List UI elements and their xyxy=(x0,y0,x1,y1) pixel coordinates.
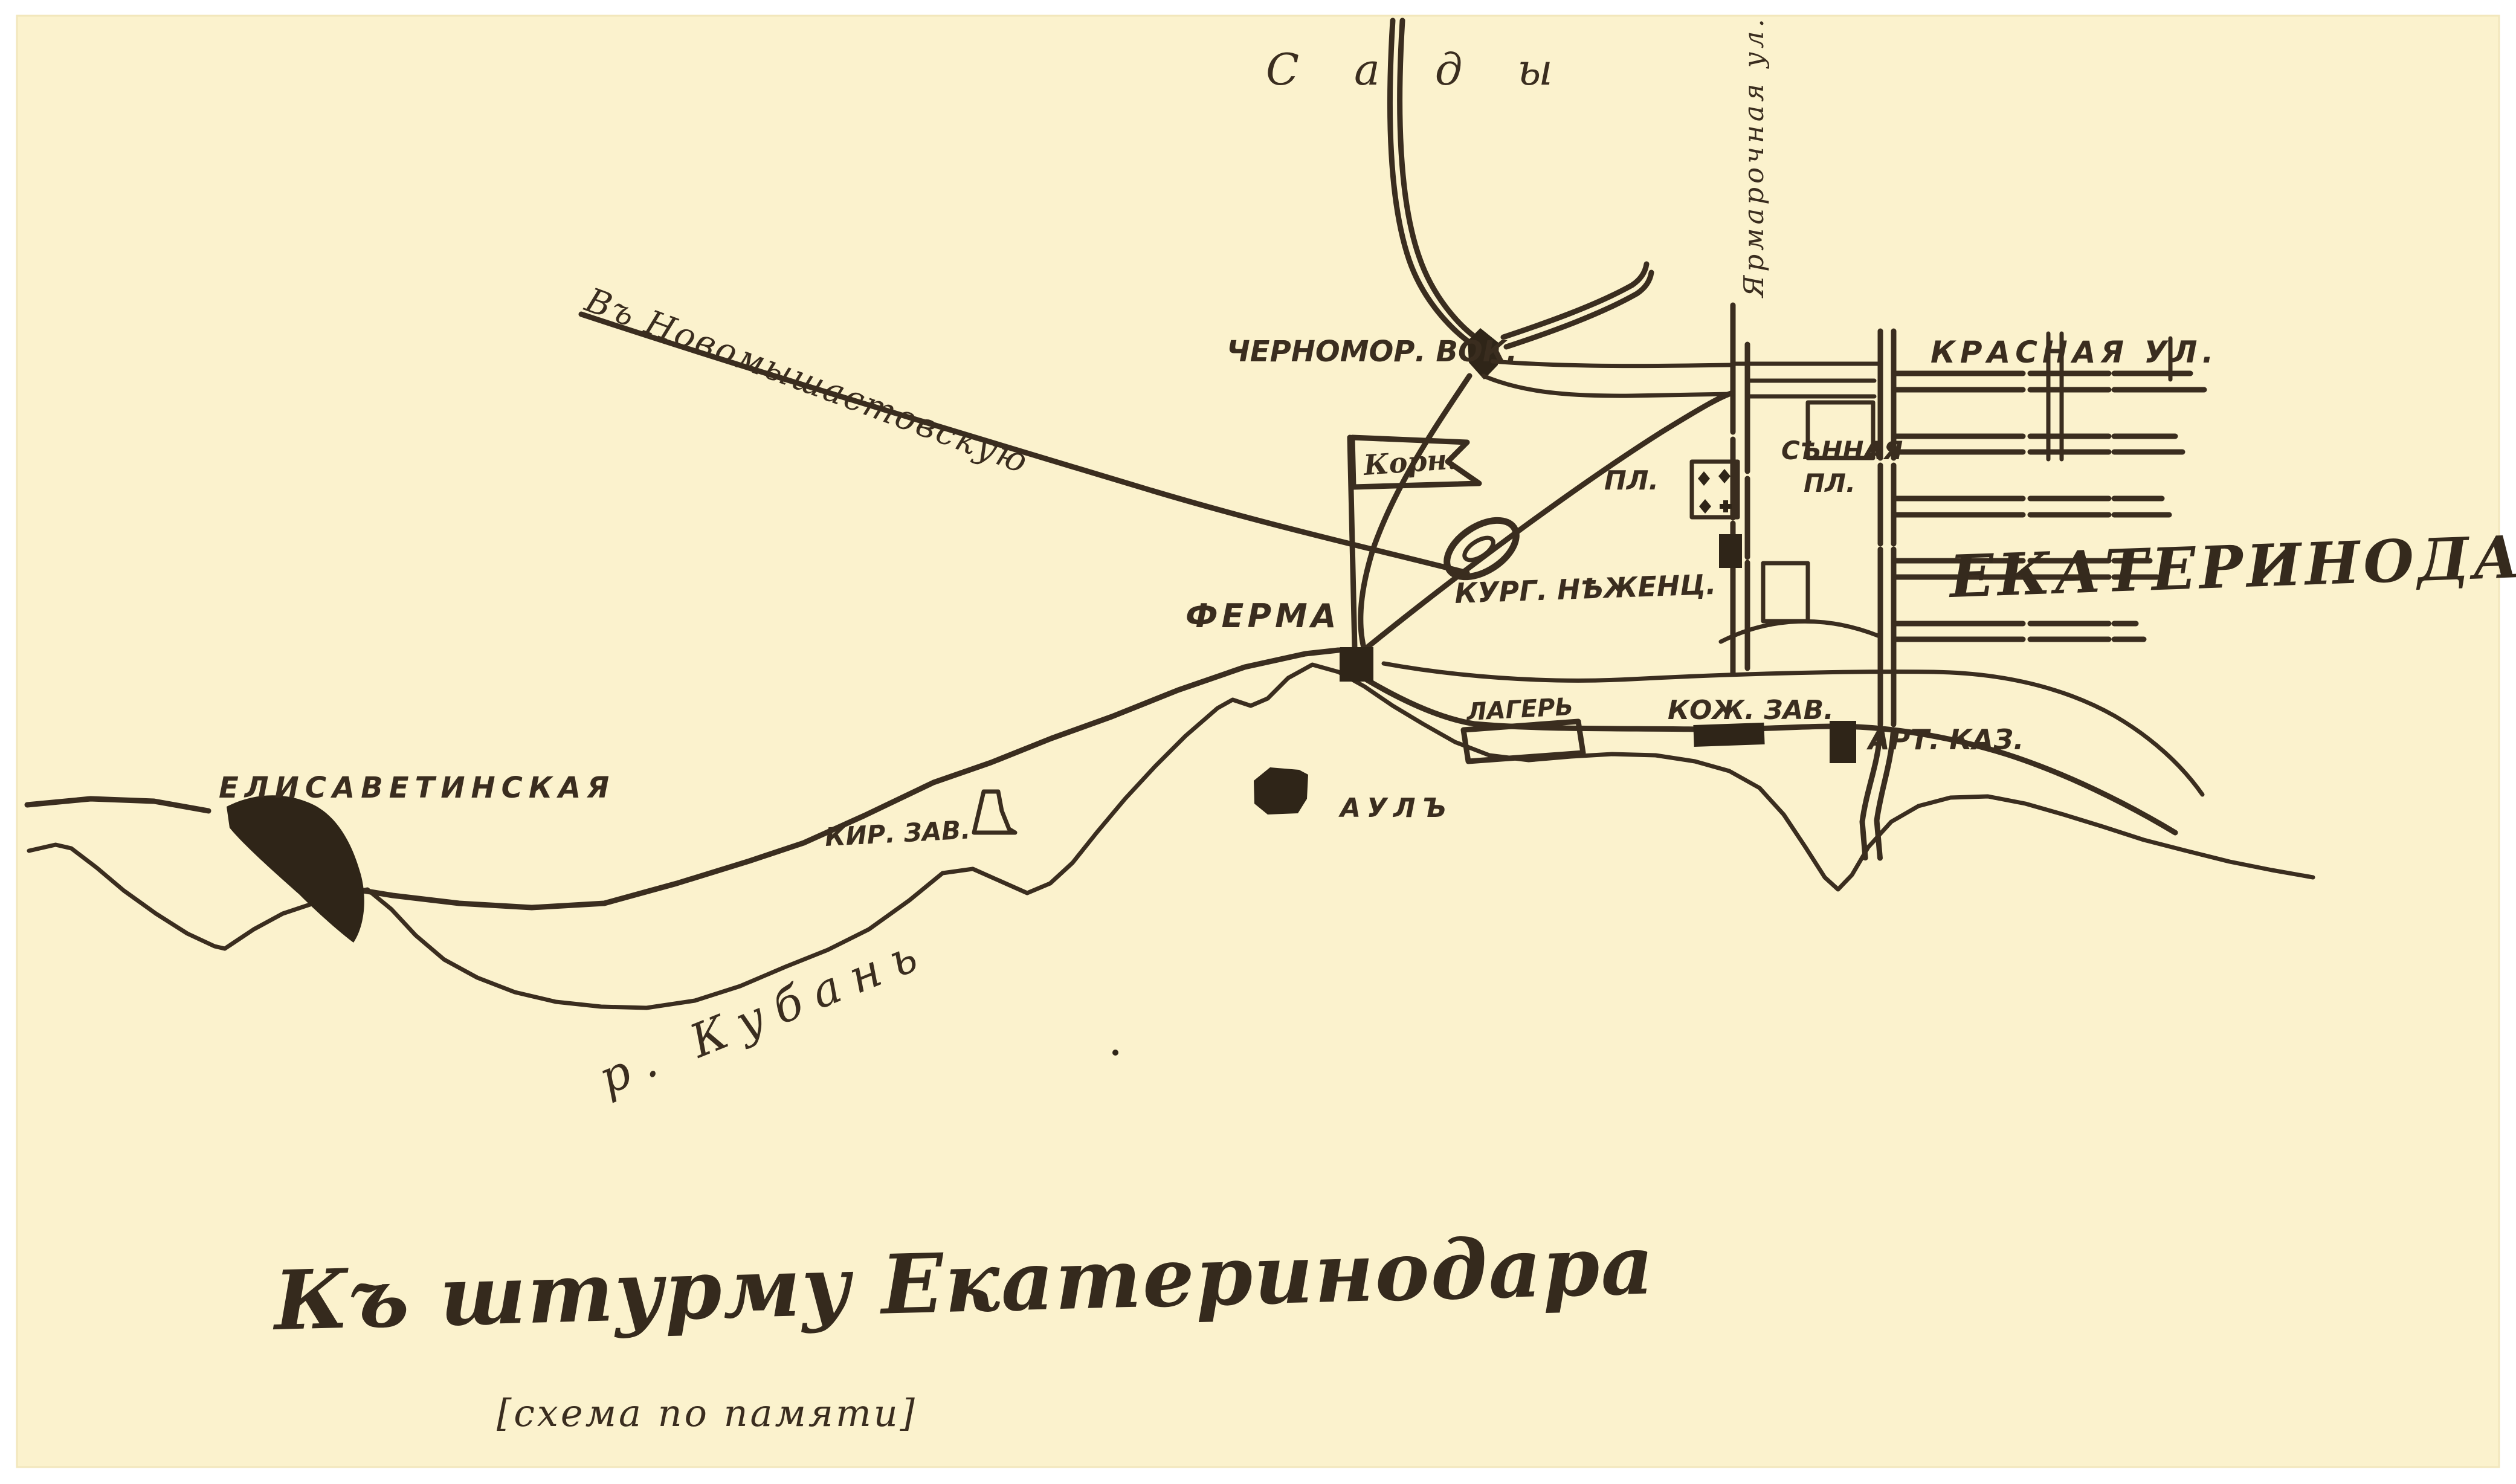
krasnaya-street-label: КРАСНАЯ УЛ. xyxy=(1931,335,2218,370)
town-building xyxy=(1719,534,1742,568)
historical-map: С а д ы Ярмарочная ул. КРАСНАЯ УЛ. СѢННА… xyxy=(0,0,2516,1484)
artillery-barracks-building xyxy=(1830,721,1856,763)
map-subtitle: [схема по памяти] xyxy=(497,1391,917,1435)
elisavetinskaya-label: ЕЛИСАВЕТИНСКАЯ xyxy=(219,771,615,805)
gardens-label: С а д ы xyxy=(1266,44,1573,95)
kornilov-flag-label: Корн. xyxy=(1361,442,1458,482)
yarmarochnaya-street-label: Ярмарочная ул. xyxy=(1738,15,1770,298)
ink-speck xyxy=(1112,1050,1118,1056)
leather-factory-label: КОЖ. ЗАВ. xyxy=(1668,695,1834,726)
west-square-label: ПЛ. xyxy=(1604,465,1659,496)
farm-label: ФЕРМА xyxy=(1185,597,1340,635)
farm-building xyxy=(1340,647,1373,682)
sennaya-square-label-line1: СѢННАЯ xyxy=(1781,436,1903,465)
sennaya-square-label-line2: ПЛ. xyxy=(1804,468,1856,498)
artillery-barracks-label: АРТ. КАЗ. xyxy=(1866,723,2024,756)
aul-building xyxy=(1254,767,1308,815)
scanned-map-page: С а д ы Ярмарочная ул. КРАСНАЯ УЛ. СѢННА… xyxy=(0,0,2516,1484)
station-label: ЧЕРНОМОР. ВОК. xyxy=(1227,335,1517,369)
aul-label: АУЛЪ xyxy=(1338,793,1453,824)
camp-label: ЛАГЕРЬ xyxy=(1465,693,1574,726)
leather-factory-building xyxy=(1693,723,1764,747)
